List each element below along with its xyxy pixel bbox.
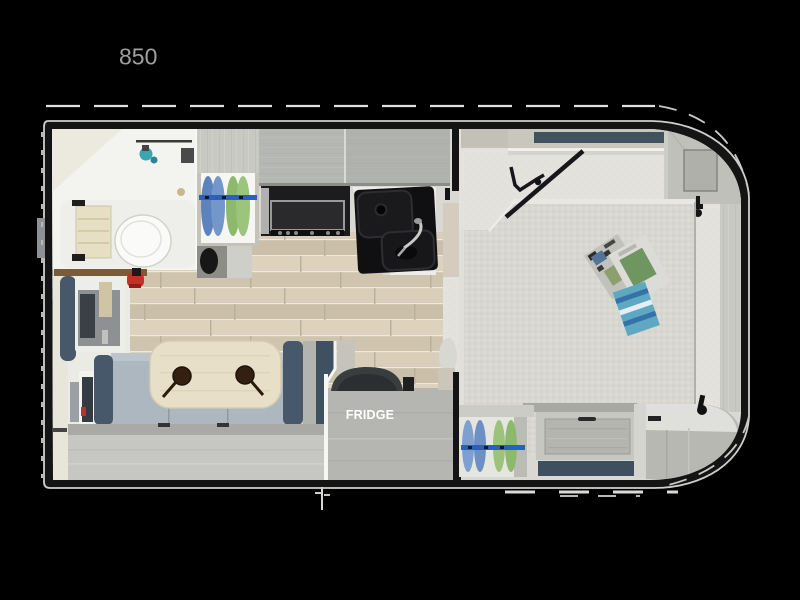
svg-text:FRIDGE: FRIDGE (346, 408, 394, 422)
svg-text:850: 850 (119, 44, 157, 70)
